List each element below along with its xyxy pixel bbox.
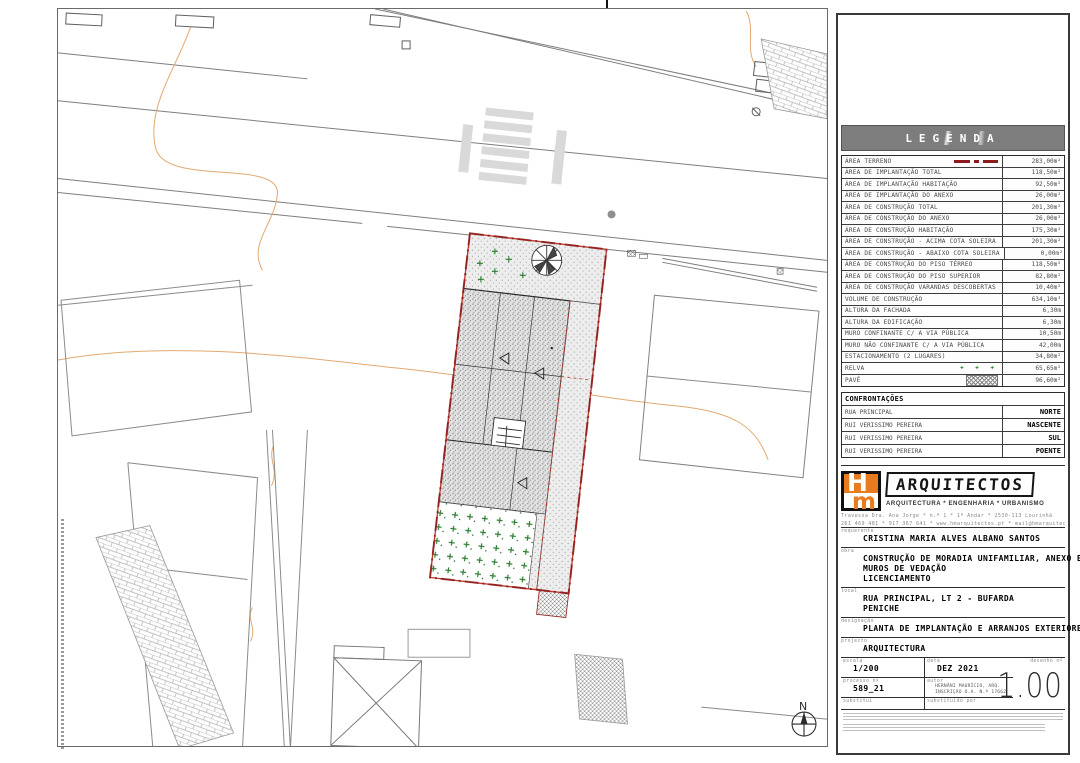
legend-row-value: 92,50m²	[1002, 179, 1061, 190]
legend-row: ESTACIONAMENTO (2 LUGARES)34,80m²	[842, 352, 1064, 364]
legend-row: ÁREA DE CONSTRUÇÃO DO ANEXO26,00m²	[842, 214, 1064, 226]
legend-row: VOLUME DE CONSTRUÇÃO634,10m³	[842, 294, 1064, 306]
field-desenho-numero: desenho nº 1.00	[1013, 658, 1065, 710]
legend-title-bar: LEGENDA	[841, 125, 1065, 151]
legend-row-label: ALTURA DA FACHADA	[845, 307, 911, 314]
svg-text:N: N	[799, 700, 807, 713]
building-footprint-x	[331, 646, 422, 746]
terreno-symbol-swatch	[954, 160, 998, 163]
confrontacao-row: RUI VERISSIMO PEREIRAPOENTE	[842, 445, 1064, 457]
legend-row-label: ALTURA DA EDIFICAÇÃO	[845, 319, 922, 326]
confrontacoes-table: CONFRONTAÇÕESRUA PRINCIPALNORTERUI VERIS…	[841, 392, 1065, 458]
relva-symbol-swatch: ✚ ✚ ✚	[960, 365, 998, 371]
titleblock-grid: escala 1/200 data DEZ 2021 desenho nº 1.…	[841, 657, 1065, 710]
confrontacao-direction: POENTE	[1002, 445, 1061, 457]
legend-row: ÁREA DE CONSTRUÇÃO HABITAÇÃO175,30m²	[842, 225, 1064, 237]
legend-row-label: PAVÊ	[845, 377, 860, 384]
legend-panel: LEGENDA ÁREA TERRENO283,00m²ÁREA DE IMPL…	[836, 13, 1070, 755]
confrontacoes-header-row: CONFRONTAÇÕES	[842, 393, 1064, 406]
plot	[430, 233, 607, 617]
confrontacao-label: RUI VERISSIMO PEREIRA	[845, 435, 1002, 442]
legend-row: ALTURA DA EDIFICAÇÃO6,30m	[842, 317, 1064, 329]
legend-row-label: ÁREA DE CONSTRUÇÃO - ABAIXO COTA SOLEIRA	[845, 250, 1000, 257]
legend-table: ÁREA TERRENO283,00m²ÁREA DE IMPLANTAÇÃO …	[841, 155, 1065, 387]
legend-row: RELVA✚ ✚ ✚65,65m²	[842, 363, 1064, 375]
lawn-relva	[430, 502, 537, 589]
tree-symbol	[532, 245, 562, 275]
road-network	[58, 9, 827, 291]
plan-sheet: N	[57, 8, 828, 747]
site-plan-drawing: N	[58, 9, 827, 746]
legend-row-value: 201,30m²	[1002, 202, 1061, 213]
fine-print-paragraph	[843, 724, 1045, 732]
architect-logo-block: H m ARQUITECTOS ARQUITECTURA * ENGENHARI…	[841, 465, 1065, 527]
hm-logo: H m	[841, 471, 881, 511]
legend-row: PAVÊ96,60m²	[842, 375, 1064, 387]
legend-row: ÁREA TERRENO283,00m²	[842, 156, 1064, 168]
legend-row: ÁREA DE IMPLANTAÇÃO DO ANEXO26,00m²	[842, 191, 1064, 203]
legend-row: ÁREA DE CONSTRUÇÃO DO PISO SUPERIOR82,80…	[842, 271, 1064, 283]
legend-row-label: ÁREA DE CONSTRUÇÃO DO PISO SUPERIOR	[845, 273, 980, 280]
field-substitui: substitui	[841, 698, 925, 710]
legend-row-label: ESTACIONAMENTO (2 LUGARES)	[845, 353, 946, 360]
confrontacao-label: RUI VERISSIMO PEREIRA	[845, 422, 1002, 429]
legend-row-value: 175,30m²	[1002, 225, 1061, 236]
legend-row-label: MURO NÃO CONFINANTE C/ A VIA PÚBLICA	[845, 342, 984, 349]
legend-row: ÁREA DE CONSTRUÇÃO - ABAIXO COTA SOLEIRA…	[842, 248, 1064, 260]
arquitectos-wordmark: ARQUITECTOS	[885, 472, 1035, 497]
lower-court	[439, 440, 553, 514]
pave-symbol-swatch	[966, 375, 998, 386]
legend-row-value: 65,65m²	[1002, 363, 1061, 374]
field-projecto: projecto ARQUITECTURA	[841, 637, 1065, 657]
logo-tagline: ARQUITECTURA * ENGENHARIA * URBANISMO	[886, 501, 1065, 507]
legend-row-value: 26,00m²	[1002, 214, 1061, 225]
sheet-number: 1.00	[998, 666, 1063, 706]
confrontacao-row: RUI VERISSIMO PEREIRANASCENTE	[842, 419, 1064, 432]
legend-row-value: 96,60m²	[1002, 375, 1061, 387]
legend-row-value: 10,50m	[1002, 329, 1061, 340]
legend-row-value: 0,00m²	[1004, 248, 1063, 259]
confrontacoes-header: CONFRONTAÇÕES	[845, 395, 904, 403]
fine-print-paragraph	[843, 713, 1063, 721]
street-tree	[608, 210, 616, 218]
legend-row-value: 6,30m	[1002, 317, 1061, 328]
legend-row-value: 283,00m²	[1002, 156, 1061, 167]
confrontacao-label: RUI VERISSIMO PEREIRA	[845, 448, 1002, 455]
page: N LEGENDA ÁREA TERRENO283,00m²ÁREA DE IM…	[0, 0, 1080, 763]
field-escala: escala 1/200	[841, 658, 925, 678]
legend-row-label: ÁREA DE IMPLANTAÇÃO TOTAL	[845, 169, 942, 176]
legend-row-label: MURO CONFINANTE C/ A VIA PÚBLICA	[845, 330, 969, 337]
legend-row: ÁREA DE CONSTRUÇÃO VARANDAS DESCOBERTAS1…	[842, 283, 1064, 295]
field-obra: obra CONSTRUÇÃO DE MORADIA UNIFAMILIAR, …	[841, 547, 1065, 587]
legend-row: ÁREA DE CONSTRUÇÃO - ACIMA COTA SOLEIRA2…	[842, 237, 1064, 249]
legend-row-value: 118,50m²	[1002, 260, 1061, 271]
side-file-path-text	[61, 519, 64, 749]
legend-row-label: ÁREA DE CONSTRUÇÃO VARANDAS DESCOBERTAS	[845, 284, 996, 291]
legend-row-value: 26,00m²	[1002, 191, 1061, 202]
legend-row-value: 10,40m²	[1002, 283, 1061, 294]
legend-row-label: VOLUME DE CONSTRUÇÃO	[845, 296, 922, 303]
legend-row-value: 34,80m²	[1002, 352, 1061, 363]
field-local: local RUA PRINCIPAL, LT 2 - BUFARDA PENI…	[841, 587, 1065, 617]
panel-spacer	[838, 15, 1068, 125]
legend-row-value: 634,10m³	[1002, 294, 1061, 305]
confrontacao-row: RUI VERISSIMO PEREIRASUL	[842, 432, 1064, 445]
legend-row-value: 6,30m	[1002, 306, 1061, 317]
legend-row-label: ÁREA DE IMPLANTAÇÃO HABITAÇÃO	[845, 181, 957, 188]
confrontacao-direction: NASCENTE	[1002, 419, 1061, 431]
legend-row: ALTURA DA FACHADA6,30m	[842, 306, 1064, 318]
legend-row: ÁREA DE CONSTRUÇÃO TOTAL201,30m²	[842, 202, 1064, 214]
legend-bar-decoration	[848, 131, 1058, 145]
confrontacao-label: RUA PRINCIPAL	[845, 409, 1002, 416]
legend-row-label: ÁREA DE CONSTRUÇÃO DO ANEXO	[845, 215, 949, 222]
legend-row-value: 201,30m²	[1002, 237, 1061, 248]
fine-print	[843, 713, 1063, 735]
hm-logo-letter-m: m	[852, 489, 876, 515]
legend-row: MURO NÃO CONFINANTE C/ A VIA PÚBLICA42,0…	[842, 340, 1064, 352]
confrontacao-direction: NORTE	[1002, 406, 1061, 418]
legend-row: ÁREA DE IMPLANTAÇÃO TOTAL118,50m²	[842, 168, 1064, 180]
legend-row-label: ÁREA DE CONSTRUÇÃO HABITAÇÃO	[845, 227, 953, 234]
confrontacao-row: RUA PRINCIPALNORTE	[842, 406, 1064, 419]
legend-row-value: 82,80m²	[1002, 271, 1061, 282]
confrontacao-direction: SUL	[1002, 432, 1061, 444]
legend-row-label: ÁREA DE CONSTRUÇÃO - ACIMA COTA SOLEIRA	[845, 238, 996, 245]
legend-row-label: ÁREA TERRENO	[845, 158, 891, 165]
legend-row-value: 118,50m²	[1002, 168, 1061, 179]
legend-row: MURO CONFINANTE C/ A VIA PÚBLICA10,50m	[842, 329, 1064, 341]
legend-row-value: 42,00m	[1002, 340, 1061, 351]
field-designacao: designação PLANTA DE IMPLANTAÇÃO E ARRAN…	[841, 617, 1065, 637]
field-requerente: requerente CRISTINA MARIA ALVES ALBANO S…	[841, 527, 1065, 547]
legend-row: ÁREA DE IMPLANTAÇÃO HABITAÇÃO92,50m²	[842, 179, 1064, 191]
legend-row-label: ÁREA DE IMPLANTAÇÃO DO ANEXO	[845, 192, 953, 199]
legend-row-label: ÁREA DE CONSTRUÇÃO TOTAL	[845, 204, 938, 211]
legend-row: ÁREA DE CONSTRUÇÃO DO PISO TÉRREO118,50m…	[842, 260, 1064, 272]
legend-row-label: RELVA	[845, 365, 864, 372]
field-processo: processo nº 589_21	[841, 678, 925, 698]
legend-row-label: ÁREA DE CONSTRUÇÃO DO PISO TÉRREO	[845, 261, 973, 268]
